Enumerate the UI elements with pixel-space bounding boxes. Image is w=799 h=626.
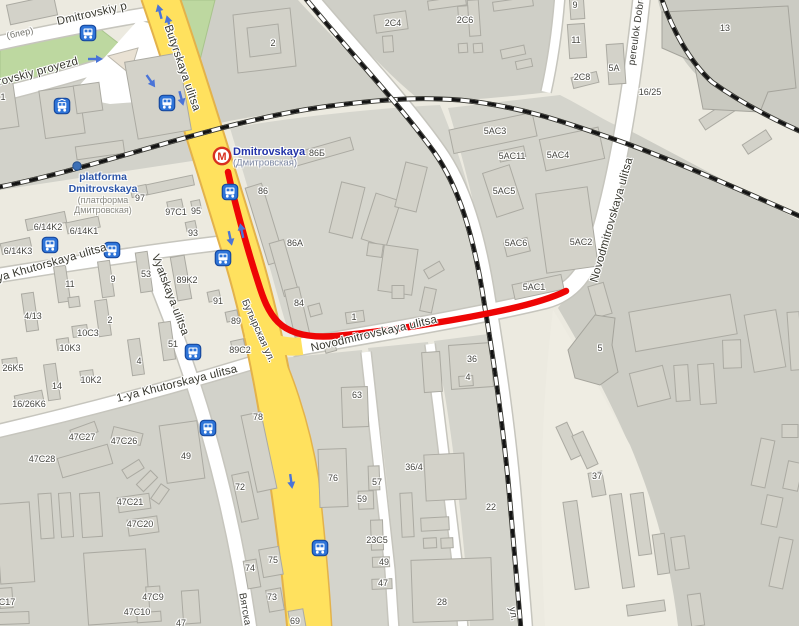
building-label: 47 — [378, 578, 388, 588]
building-label: 69 — [290, 616, 300, 626]
building-label: 47C20 — [127, 519, 154, 529]
street-label: pereulok Dobro — [627, 0, 648, 66]
building-label: 89K2 — [176, 275, 197, 285]
rail-platform-name: Dmitrovskaya — [69, 183, 138, 195]
building-label: 16/26K6 — [12, 399, 46, 409]
building-label: 5AC11 — [499, 151, 526, 161]
building-label: 47 — [176, 618, 186, 626]
building-label: 10C3 — [77, 328, 99, 338]
building-label: 10K2 — [80, 375, 101, 385]
building-label: 84 — [294, 298, 304, 308]
building-label: 76 — [328, 473, 338, 483]
building-label: 86 — [258, 186, 268, 196]
building-label: 2 — [270, 38, 275, 48]
building-label: 9 — [110, 274, 115, 284]
building-label: 2 — [107, 315, 112, 325]
building-label: 89C2 — [229, 345, 251, 355]
building-label: 47C9 — [142, 592, 164, 602]
building-label: 49 — [379, 557, 389, 567]
street-label: rovskiy proyezd — [0, 55, 80, 88]
building-label: 95 — [191, 206, 201, 216]
building-label: 97C1 — [165, 207, 187, 217]
building-label: 47C27 — [69, 432, 96, 442]
street-label: (блер) — [6, 25, 35, 40]
building-label: 49 — [181, 451, 191, 461]
building-label: 53 — [141, 269, 151, 279]
building-label: 6/14K2 — [34, 222, 63, 232]
building-label: 28 — [437, 597, 447, 607]
building-label: 2C8 — [574, 72, 591, 82]
metro-station-label: Dmitrovskaya — [233, 146, 305, 158]
building-label: 2C6 — [457, 15, 474, 25]
building-label: 89 — [231, 316, 241, 326]
building-label: 91 — [213, 296, 223, 306]
building-label: 78 — [253, 412, 263, 422]
building-label: 11 — [571, 35, 580, 45]
building-label: 4 — [136, 356, 141, 366]
building-label: 6/14K3 — [4, 246, 33, 256]
street-label: 1-ya Khutorskaya ulitsa — [115, 363, 238, 405]
metro-station-label-local: (Дмитровская) — [233, 158, 297, 169]
building-label: 59 — [357, 494, 367, 504]
building-label: 47C28 — [29, 454, 56, 464]
building-label: 11 — [65, 279, 74, 289]
rail-platform-name-local: Дмитровская) — [69, 205, 138, 215]
building-label: 86A — [287, 238, 303, 248]
building-label: 74 — [245, 563, 255, 573]
street-label: Dmitrovskiy p — [56, 0, 128, 28]
building-label: 36 — [467, 354, 477, 364]
building-label: 16/25 — [639, 87, 662, 97]
building-label: 1 — [351, 312, 356, 322]
building-label: 1 — [0, 92, 5, 102]
building-label: 5AC5 — [493, 186, 516, 196]
building-label: C17 — [0, 597, 15, 607]
building-label: 51 — [168, 339, 178, 349]
building-label: 2C4 — [385, 18, 402, 28]
building-label: 63 — [352, 390, 362, 400]
building-label: 73 — [267, 592, 277, 602]
building-label: 47C10 — [124, 607, 151, 617]
building-label: 5A — [608, 63, 619, 73]
building-label: 5AC2 — [570, 237, 593, 247]
building-label: 14 — [52, 381, 62, 391]
building-label: 93 — [188, 228, 198, 238]
building-label: 10K3 — [59, 343, 80, 353]
building-label: 5 — [597, 343, 602, 353]
building-label: 47C26 — [111, 436, 138, 446]
building-label: 22 — [486, 502, 496, 512]
building-label: 57 — [372, 477, 382, 487]
building-label: 4 — [465, 372, 470, 382]
building-label: 23C5 — [366, 535, 388, 545]
building-label: 86Б — [309, 148, 325, 158]
building-label: 75 — [268, 555, 278, 565]
street-label: Butyrskaya ulitsa — [162, 23, 203, 112]
building-label: 37 — [592, 471, 602, 481]
street-label: ул. — [506, 606, 519, 622]
building-label: 9 — [572, 0, 577, 10]
building-label: 47C21 — [117, 497, 144, 507]
building-label: 5AC3 — [484, 126, 507, 136]
rail-platform-name: platforma — [69, 171, 138, 183]
building-label: 36/4 — [405, 462, 423, 472]
building-label: 5AC4 — [547, 150, 570, 160]
building-label: 72 — [235, 482, 245, 492]
street-label: Novodmitrovskaya ulitsa — [310, 314, 439, 355]
rail-platform-label: platformaDmitrovskaya(платформаДмитровск… — [69, 171, 138, 215]
building-label: 4/13 — [24, 311, 42, 321]
building-label: 13 — [720, 23, 730, 33]
building-label: 5AC1 — [523, 282, 546, 292]
building-label: 26K5 — [2, 363, 23, 373]
rail-platform-name-local: (платформа — [69, 195, 138, 205]
street-label: Vyatskaya ulitsa — [149, 253, 191, 337]
building-label: 5AC6 — [505, 238, 528, 248]
building-label: 6/14K1 — [70, 226, 99, 236]
map-viewport[interactable]: M Dmitrovskiy provskiy proyezd(блер)Buty… — [0, 0, 799, 626]
street-label: Вятская — [236, 592, 254, 626]
street-label: Novodmitrovskaya ulitsa — [588, 156, 635, 284]
